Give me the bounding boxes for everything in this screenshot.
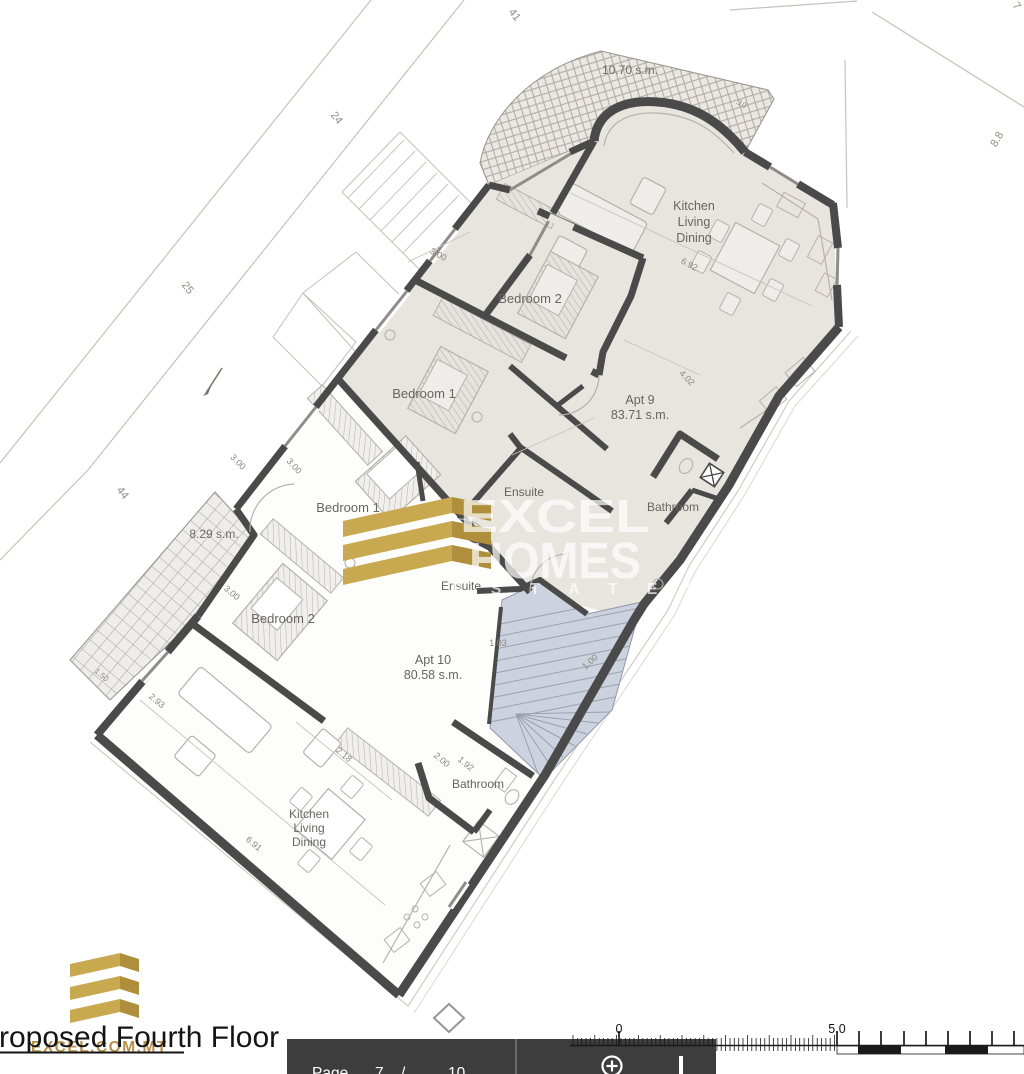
svg-text:/: / (401, 1065, 406, 1074)
svg-text:Bedroom 2: Bedroom 2 (498, 291, 562, 306)
svg-text:5.0: 5.0 (828, 1022, 845, 1036)
svg-text:Kitchen: Kitchen (289, 807, 329, 821)
svg-text:7: 7 (375, 1065, 384, 1074)
svg-text:Bedroom 1: Bedroom 1 (392, 386, 456, 401)
svg-text:E: E (647, 581, 657, 598)
svg-text:S: S (491, 581, 501, 598)
svg-text:Bathroom: Bathroom (647, 500, 699, 514)
svg-text:Apt 9: Apt 9 (625, 393, 654, 407)
svg-text:Living: Living (293, 821, 324, 835)
svg-text:Living: Living (678, 215, 711, 229)
svg-text:Dining: Dining (292, 835, 326, 849)
svg-text:Dining: Dining (676, 231, 711, 245)
svg-text:10.70 s.m.: 10.70 s.m. (602, 63, 658, 77)
svg-text:1.03: 1.03 (489, 638, 507, 648)
svg-text:A: A (568, 581, 579, 598)
svg-text:Page: Page (312, 1065, 348, 1074)
svg-text:10: 10 (448, 1065, 466, 1074)
svg-text:roposed Fourth Floor: roposed Fourth Floor (0, 1021, 279, 1054)
svg-text:T: T (608, 581, 618, 598)
svg-text:0: 0 (616, 1022, 623, 1036)
svg-text:Kitchen: Kitchen (673, 199, 715, 213)
svg-text:Apt 10: Apt 10 (415, 653, 451, 667)
svg-text:T: T (530, 581, 540, 598)
svg-text:E: E (452, 581, 462, 598)
svg-text:Bathroom: Bathroom (452, 777, 504, 791)
svg-text:S: S (686, 581, 696, 598)
svg-text:8.29 s.m.: 8.29 s.m. (189, 527, 238, 541)
svg-text:Bedroom 2: Bedroom 2 (251, 611, 315, 626)
svg-text:80.58 s.m.: 80.58 s.m. (404, 668, 462, 682)
svg-text:Bedroom 1: Bedroom 1 (316, 500, 380, 515)
svg-text:83.71 s.m.: 83.71 s.m. (611, 408, 669, 422)
